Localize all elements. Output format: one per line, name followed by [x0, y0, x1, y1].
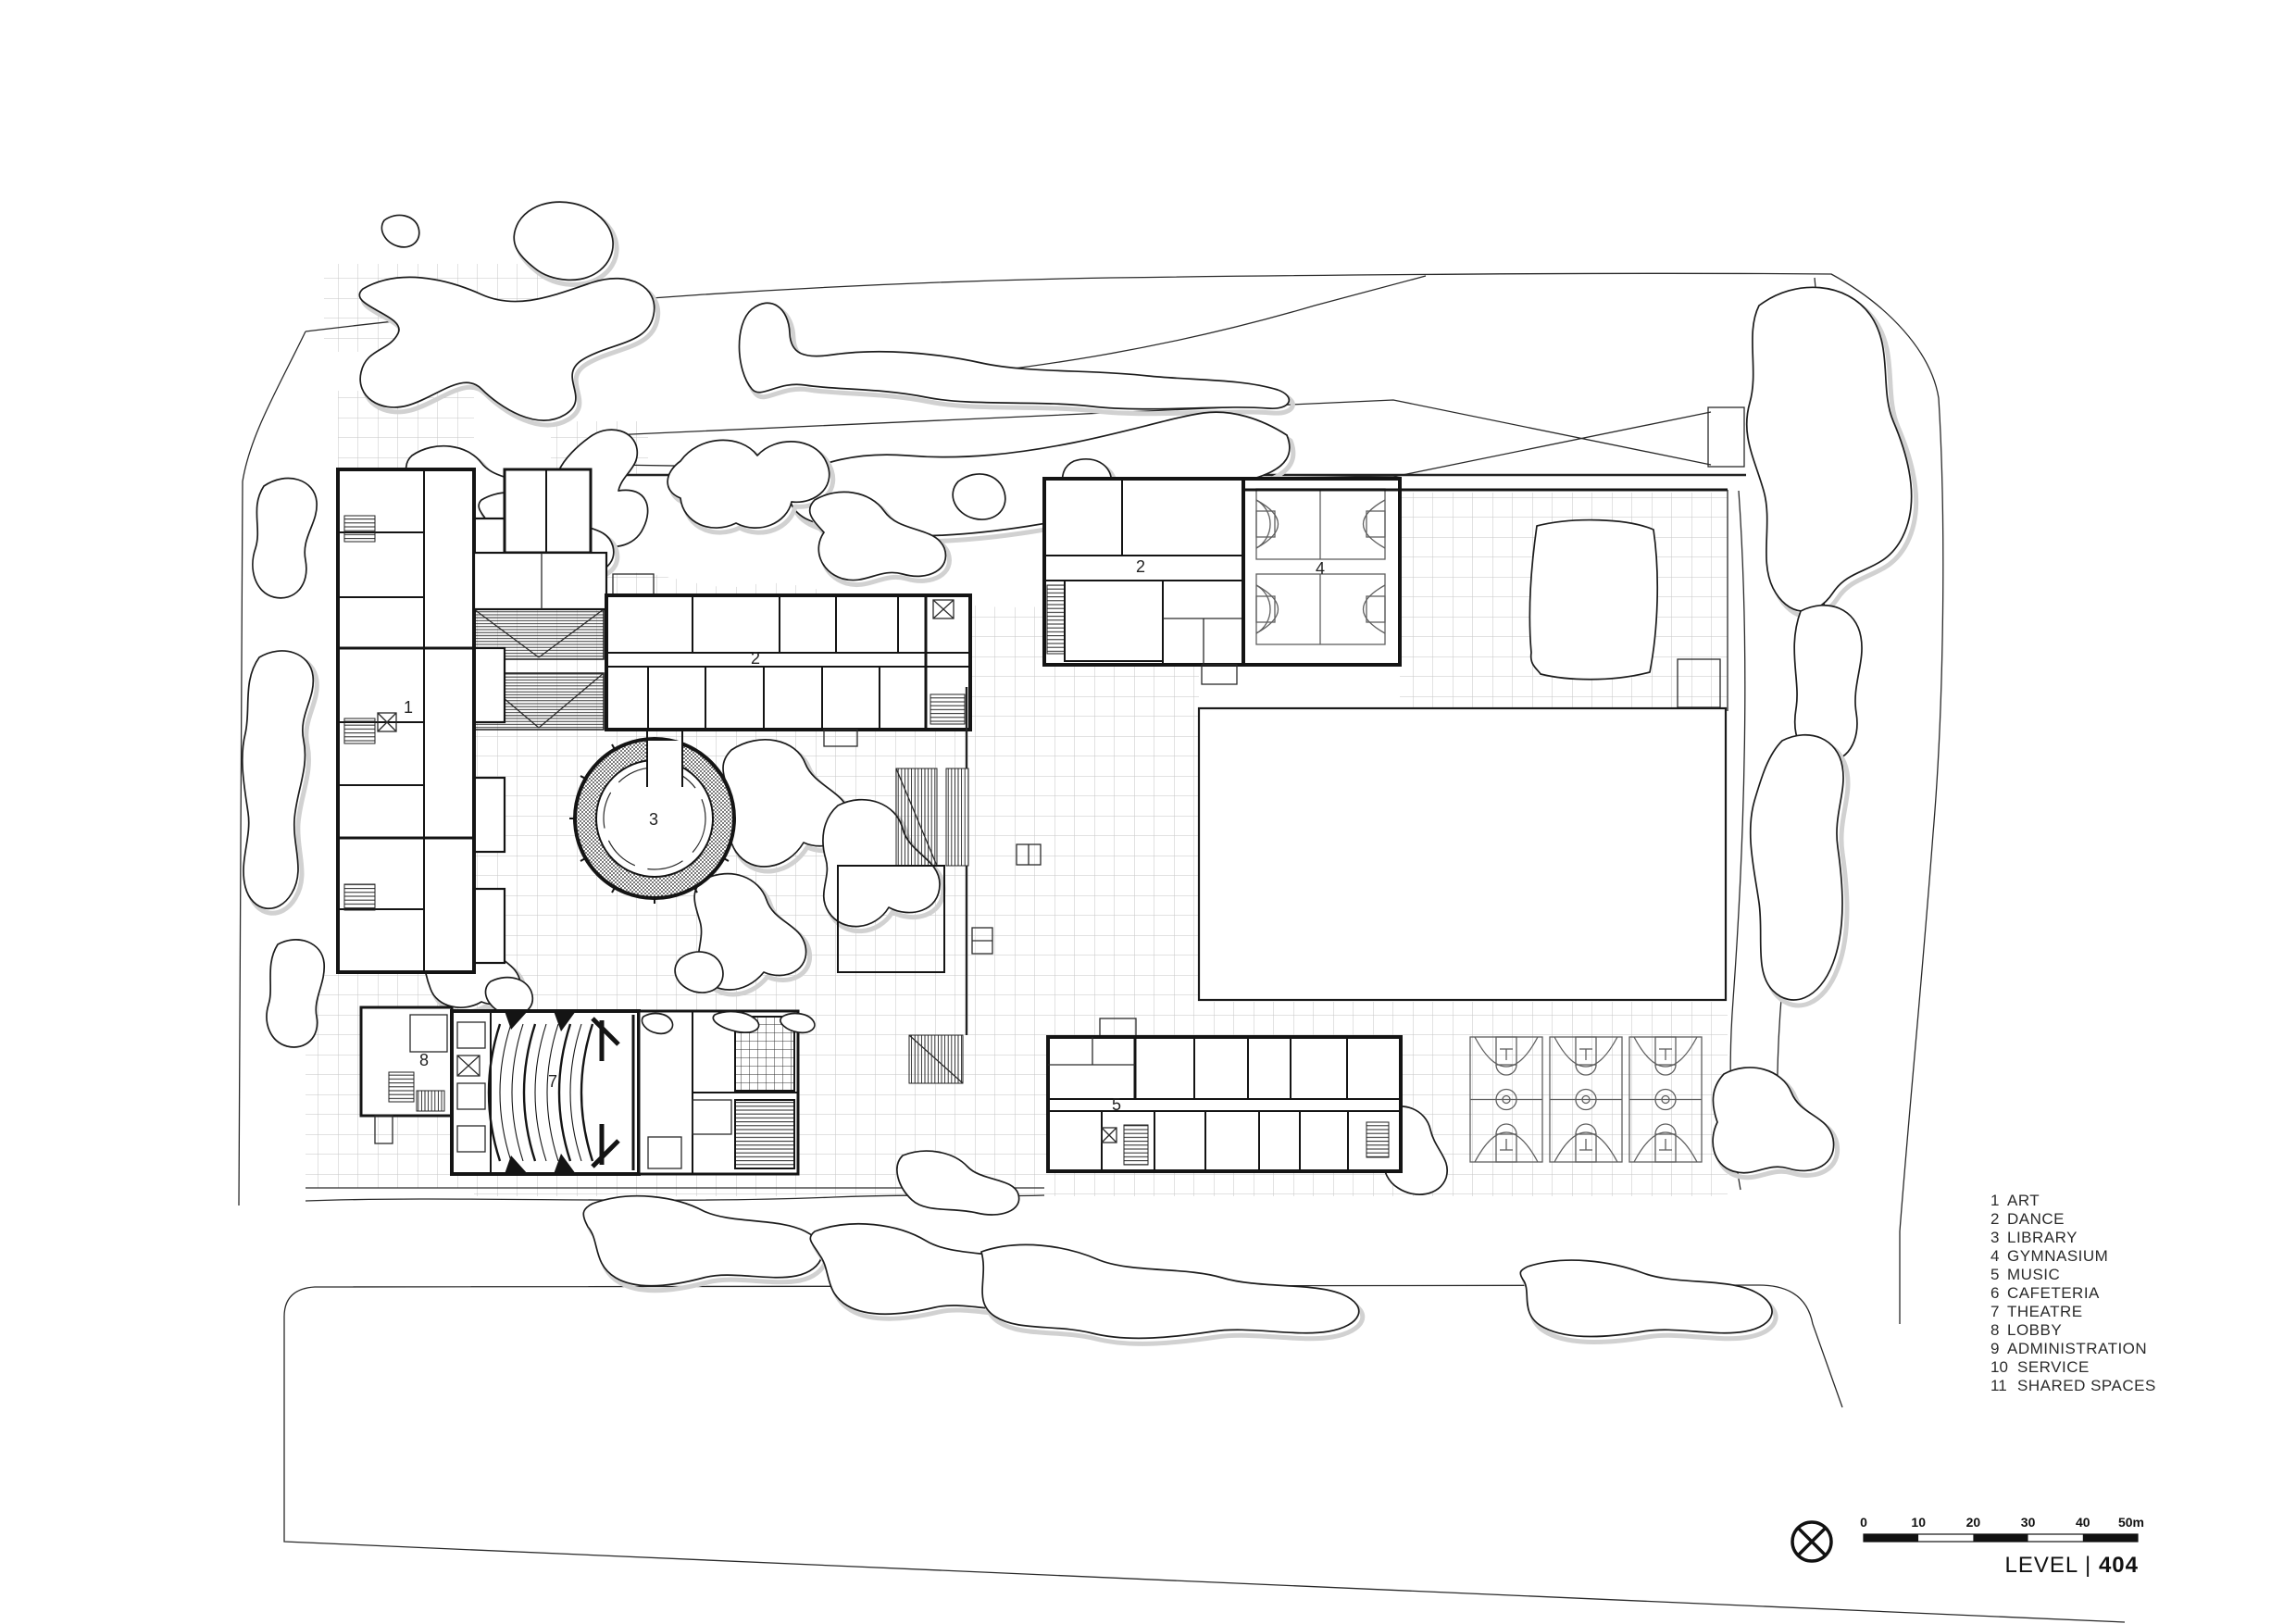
- legend-num-9: 9: [1990, 1340, 1999, 1357]
- legend: 1ART2DANCE3LIBRARY4GYMNASIUM5MUSIC6CAFET…: [1990, 1192, 2156, 1394]
- legend-num-10: 10: [1990, 1358, 2008, 1376]
- legend-label-cafeteria: CAFETERIA: [2007, 1284, 2100, 1302]
- library-entrance-bridge: [647, 741, 682, 787]
- legend-num-4: 4: [1990, 1247, 1999, 1265]
- scale-tick-50m: 50m: [2118, 1515, 2144, 1530]
- scale-tick-0: 0: [1860, 1515, 1867, 1530]
- plan-label-5: 5: [1112, 1095, 1121, 1114]
- legend-label-gymnasium: GYMNASIUM: [2007, 1247, 2108, 1265]
- scale-tick-30: 30: [2021, 1515, 2036, 1530]
- north-arrow-icon: [1792, 1522, 1831, 1561]
- scale-tick-10: 10: [1911, 1515, 1926, 1530]
- plan-label-8: 8: [419, 1051, 429, 1069]
- legend-num-1: 1: [1990, 1192, 1999, 1209]
- legend-label-shared-spaces: SHARED SPACES: [2017, 1377, 2156, 1394]
- legend-label-library: LIBRARY: [2007, 1229, 2078, 1246]
- legend-num-11: 11: [1990, 1377, 2007, 1394]
- legend-label-dance: DANCE: [2007, 1210, 2065, 1228]
- plan-label-3: 3: [649, 810, 658, 829]
- legend-label-art: ART: [2007, 1192, 2040, 1209]
- legend-label-lobby: LOBBY: [2007, 1321, 2062, 1339]
- legend-num-7: 7: [1990, 1303, 1999, 1320]
- legend-label-service: SERVICE: [2017, 1358, 2090, 1376]
- theatre-7: [452, 1011, 639, 1174]
- sports-field: [1199, 708, 1726, 1000]
- level-title: LEVEL | 404: [2005, 1553, 2139, 1578]
- legend-num-5: 5: [1990, 1266, 1999, 1283]
- plan-label-1: 1: [404, 698, 413, 717]
- scale-tick-20: 20: [1966, 1515, 1981, 1530]
- building-5-music: [1048, 1018, 1401, 1171]
- service-annex: [639, 1011, 798, 1174]
- legend-num-6: 6: [1990, 1284, 1999, 1302]
- legend-label-theatre: THEATRE: [2007, 1303, 2083, 1320]
- legend-num-2: 2: [1990, 1210, 1999, 1228]
- scale-bar: 01020304050m: [1860, 1515, 2144, 1542]
- plan-label-2: 2: [1136, 557, 1145, 576]
- floor-plan-sheet: 12234578 1ART2DANCE3LIBRARY4GYMNASIUM5MU…: [0, 0, 2296, 1624]
- plan-label-2: 2: [751, 649, 760, 668]
- plan-label-4: 4: [1316, 559, 1325, 578]
- plan-label-7: 7: [548, 1072, 557, 1091]
- legend-label-administration: ADMINISTRATION: [2007, 1340, 2147, 1357]
- legend-num-3: 3: [1990, 1229, 1999, 1246]
- legend-num-8: 8: [1990, 1321, 1999, 1339]
- legend-label-music: MUSIC: [2007, 1266, 2060, 1283]
- scale-tick-40: 40: [2076, 1515, 2090, 1530]
- building-2-dance-east: [1044, 479, 1243, 684]
- floor-plan-drawing: 12234578 1ART2DANCE3LIBRARY4GYMNASIUM5MU…: [0, 0, 2296, 1624]
